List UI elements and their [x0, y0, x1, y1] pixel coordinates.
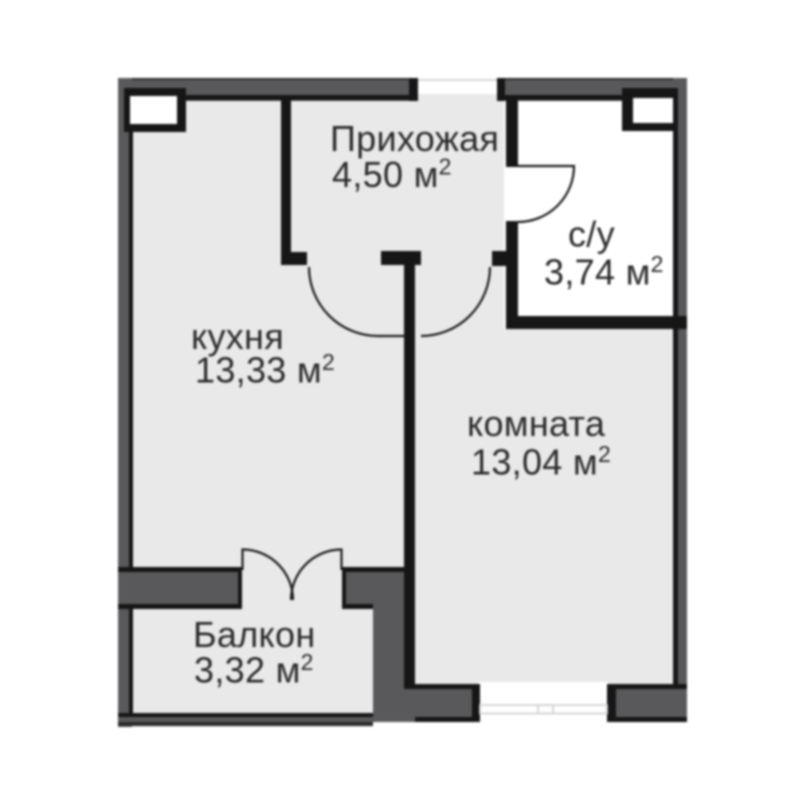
svg-text:13,04 м2: 13,04 м2: [471, 441, 611, 483]
svg-text:13,33 м2: 13,33 м2: [195, 349, 335, 391]
svg-text:комната: комната: [467, 403, 606, 444]
svg-text:3,74 м2: 3,74 м2: [544, 251, 664, 293]
svg-text:с/у: с/у: [568, 214, 615, 255]
svg-text:4,50 м2: 4,50 м2: [332, 154, 452, 196]
svg-text:Прихожая: Прихожая: [330, 118, 499, 159]
svg-text:3,32 м2: 3,32 м2: [194, 649, 314, 691]
